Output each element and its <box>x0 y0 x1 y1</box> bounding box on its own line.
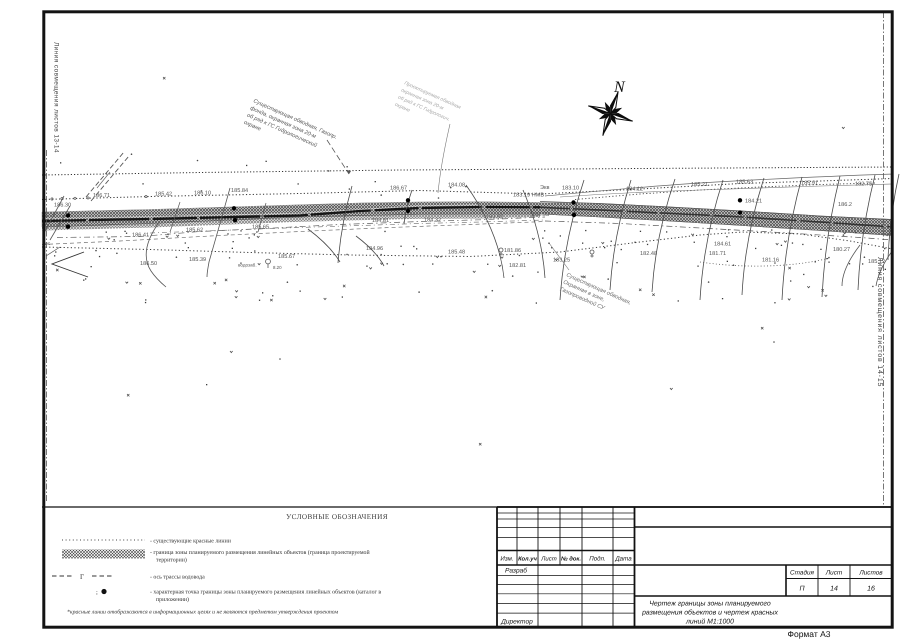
svg-text:185.39: 185.39 <box>189 257 206 263</box>
svg-text:181.86: 181.86 <box>504 248 521 254</box>
svg-text:184.61: 184.61 <box>714 242 731 248</box>
svg-text:186.50: 186.50 <box>140 261 157 267</box>
svg-text:185.91: 185.91 <box>801 181 818 187</box>
svg-text:182.75: 182.75 <box>855 182 872 188</box>
svg-text:Лист: Лист <box>825 570 843 577</box>
svg-text:181.16: 181.16 <box>762 258 779 264</box>
svg-text:182.93: 182.93 <box>532 212 549 218</box>
svg-text:180.27: 180.27 <box>833 247 850 253</box>
svg-text:Листов: Листов <box>858 570 883 577</box>
svg-text:8.20: 8.20 <box>273 265 282 270</box>
svg-text:№ док.: № док. <box>561 556 581 563</box>
svg-text:Директор: Директор <box>500 619 533 626</box>
svg-text:182.48: 182.48 <box>640 251 657 257</box>
svg-text:186.41: 186.41 <box>132 233 149 239</box>
svg-text:линий М1:1000: линий М1:1000 <box>685 618 734 626</box>
svg-text:185.62: 185.62 <box>186 228 203 234</box>
svg-text:Кол.уч: Кол.уч <box>518 557 537 563</box>
svg-text:приложении): приложении) <box>156 596 189 603</box>
svg-text:Изм.: Изм. <box>500 556 513 563</box>
svg-text:185.42: 185.42 <box>155 192 172 198</box>
svg-text:184.96: 184.96 <box>366 246 383 252</box>
svg-text:185.21: 185.21 <box>691 182 708 188</box>
svg-text:территории): территории) <box>156 557 187 564</box>
svg-text:УСЛОВНЫЕ ОБОЗНАЧЕНИЯ: УСЛОВНЫЕ ОБОЗНАЧЕНИЯ <box>286 513 388 521</box>
svg-text:182.81: 182.81 <box>509 263 526 269</box>
svg-text:Разраб: Разраб <box>505 568 527 575</box>
svg-text:*красные линии отображаются в: *красные линии отображаются в информацио… <box>67 609 338 616</box>
svg-text:14: 14 <box>830 586 838 593</box>
svg-text:186.71: 186.71 <box>93 193 110 199</box>
svg-text:;: ; <box>96 589 98 596</box>
svg-text:Подп.: Подп. <box>589 556 605 563</box>
svg-text:Чертеж границы зоны планируемо: Чертеж границы зоны планируемого <box>649 601 771 608</box>
svg-text:183.92: 183.92 <box>486 215 503 221</box>
svg-text:185.65: 185.65 <box>252 225 269 231</box>
svg-text:Линия совмещения листов 13-14: Линия совмещения листов 13-14 <box>53 42 60 153</box>
svg-text:186.2: 186.2 <box>838 202 852 208</box>
svg-text:185.84: 185.84 <box>231 188 248 194</box>
svg-text:- существующие красные линии: - существующие красные линии <box>150 539 232 545</box>
svg-text:размещения объектов и чертеж к: размещения объектов и чертеж красных <box>641 609 778 617</box>
svg-text:186.10: 186.10 <box>194 191 211 197</box>
svg-text:Экв: Экв <box>540 185 549 191</box>
svg-text:185.48: 185.48 <box>448 250 465 256</box>
svg-text:Лист: Лист <box>540 556 556 563</box>
svg-text:16: 16 <box>867 586 875 593</box>
svg-text:181.71: 181.71 <box>709 251 726 257</box>
svg-text:- граница зоны планируемого ра: - граница зоны планируемого размещения л… <box>150 549 370 556</box>
svg-text:Линия совмещения листов 14-15: Линия совмещения листов 14-15 <box>876 257 883 387</box>
svg-text:184.81: 184.81 <box>372 218 389 224</box>
svg-text:183.19 НМВ: 183.19 НМВ <box>513 193 544 199</box>
svg-text:184.12: 184.12 <box>626 187 643 193</box>
svg-text:185.67: 185.67 <box>278 254 295 260</box>
svg-text:Формат А3: Формат А3 <box>788 629 831 639</box>
svg-text:186.30: 186.30 <box>54 203 71 209</box>
svg-text:Стадия: Стадия <box>790 570 815 577</box>
svg-text:П: П <box>799 586 805 593</box>
svg-text:Г: Г <box>80 573 84 581</box>
svg-text:184.32: 184.32 <box>424 218 441 224</box>
svg-text:186.67: 186.67 <box>390 186 407 192</box>
svg-text:183.10: 183.10 <box>562 186 579 192</box>
svg-text:- характерная точка границы зо: - характерная точка границы зоны планиру… <box>150 589 381 596</box>
svg-text:185.63: 185.63 <box>736 180 753 186</box>
svg-text:N: N <box>613 79 626 96</box>
svg-text:184.21: 184.21 <box>745 199 762 205</box>
svg-text:Дата: Дата <box>614 556 632 563</box>
svg-text:- ось трассы водовода: - ось трассы водовода <box>150 575 205 581</box>
svg-text:183.25: 183.25 <box>553 258 570 264</box>
